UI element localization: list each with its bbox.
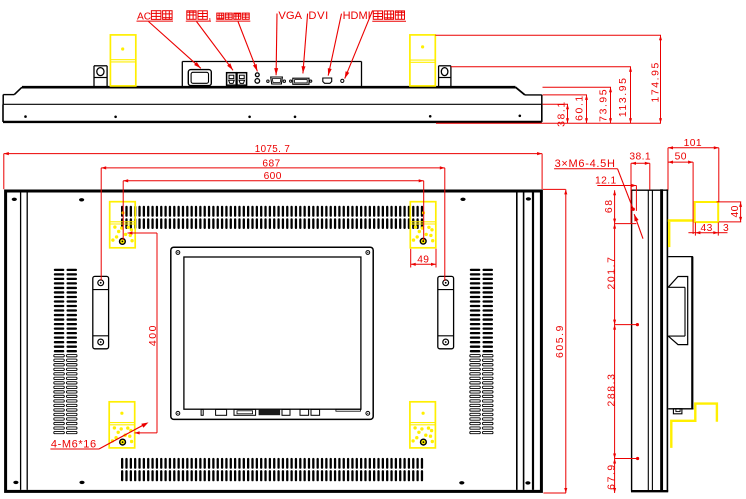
svg-text:3: 3 (723, 223, 729, 234)
svg-text:113.95: 113.95 (618, 76, 629, 117)
svg-text:1075. 7: 1075. 7 (255, 144, 291, 155)
svg-text:40: 40 (730, 205, 741, 217)
svg-text:49: 49 (417, 254, 429, 265)
svg-text:687: 687 (262, 158, 280, 169)
svg-text:288.3: 288.3 (607, 372, 618, 406)
svg-text:400: 400 (148, 324, 159, 346)
svg-text:60.1: 60.1 (575, 94, 586, 121)
svg-text:43: 43 (700, 223, 712, 234)
svg-text:HDMI: HDMI (343, 10, 371, 22)
svg-text:DVI: DVI (308, 10, 328, 22)
svg-text:600: 600 (264, 171, 282, 182)
svg-text:12.1: 12.1 (595, 175, 617, 186)
svg-text:201.7: 201.7 (607, 255, 618, 289)
svg-text:38.1: 38.1 (557, 100, 568, 127)
svg-text:68: 68 (604, 198, 615, 213)
svg-text:38.1: 38.1 (629, 152, 651, 163)
svg-text:50: 50 (675, 152, 687, 163)
svg-text:VGA: VGA (278, 10, 302, 22)
svg-text:3×M6-4.5H: 3×M6-4.5H (555, 158, 616, 170)
svg-text:73.95: 73.95 (599, 88, 610, 122)
svg-text:101: 101 (684, 138, 702, 149)
svg-text:67.9: 67.9 (607, 463, 618, 490)
svg-text:605.9: 605.9 (555, 324, 566, 358)
svg-text:174.95: 174.95 (650, 61, 661, 102)
